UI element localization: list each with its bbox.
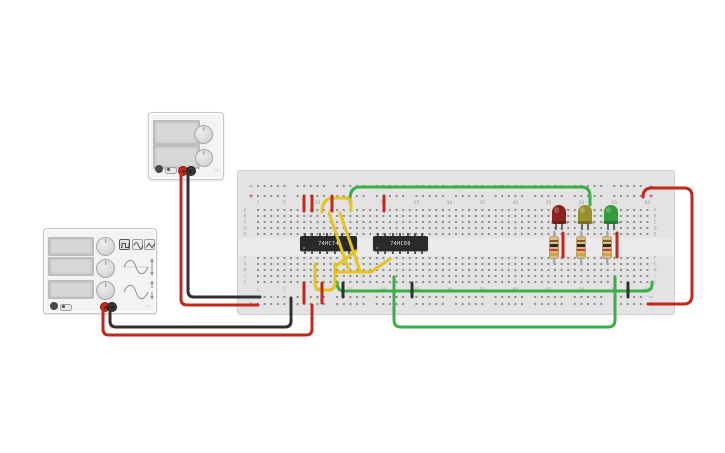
offset-diagram-icon — [123, 279, 155, 301]
ic-pin — [392, 251, 394, 254]
current-knob[interactable] — [195, 149, 213, 167]
function-generator-brand-mark: ~ — [146, 304, 151, 310]
ic-pin — [414, 251, 416, 254]
ic-pin — [319, 251, 321, 254]
ic-pin — [384, 233, 386, 236]
resistor-band — [550, 249, 558, 252]
ic-pin — [392, 233, 394, 236]
function-generator[interactable]: ~ — [43, 228, 157, 314]
offset-diagram — [123, 279, 155, 305]
ic-pin — [399, 233, 401, 236]
triangle-wave-icon — [145, 240, 156, 251]
ic-pin — [304, 251, 306, 254]
resistor-band — [577, 253, 585, 256]
led-yellow[interactable] — [578, 205, 592, 224]
sine-wave-button[interactable] — [132, 239, 143, 250]
ic-pin — [377, 251, 379, 254]
resistor-2[interactable] — [576, 236, 586, 259]
ic-pin — [421, 251, 423, 254]
ic-74hc74-label: 74HC74 — [318, 241, 338, 247]
ic-pin — [421, 233, 423, 236]
power-toggle-knob-icon — [50, 302, 58, 310]
resistor-band — [550, 244, 558, 247]
ic-74hc08[interactable]: 74HC08 — [373, 236, 428, 251]
function-generator-power-toggle[interactable] — [50, 302, 70, 310]
led-red-anode — [555, 224, 557, 230]
square-wave-button[interactable] — [119, 239, 130, 250]
ic-pin — [348, 233, 350, 236]
ic-pin — [414, 233, 416, 236]
frequency-knob[interactable] — [96, 237, 115, 256]
offset-knob[interactable] — [96, 281, 115, 300]
led-green[interactable] — [604, 205, 618, 224]
resistor-band — [577, 244, 585, 247]
led-red-cathode — [561, 224, 563, 230]
square-wave-icon — [120, 240, 131, 251]
power-supply-power-toggle[interactable] — [155, 165, 175, 173]
resistor-band — [550, 253, 558, 256]
power-supply-brand-mark: ~ — [214, 168, 219, 174]
led-green-anode — [607, 224, 609, 230]
ic-pin — [377, 233, 379, 236]
ic-74hc08-label: 74HC08 — [390, 241, 410, 247]
resistor-band — [550, 240, 558, 243]
function-generator-negative-terminal[interactable] — [107, 302, 117, 312]
amplitude-knob[interactable] — [96, 259, 115, 278]
ic-pin — [399, 251, 401, 254]
resistor-band — [577, 240, 585, 243]
ic-74hc74[interactable]: 74HC74 — [300, 236, 357, 251]
resistor-band — [603, 244, 611, 247]
triangle-wave-button[interactable] — [144, 239, 155, 250]
ic-pin — [334, 251, 336, 254]
power-toggle-knob-icon — [155, 165, 163, 173]
led-green-cathode — [613, 224, 615, 230]
sine-wave-icon — [133, 240, 144, 251]
frequency-display — [48, 237, 94, 256]
ic-pin — [304, 233, 306, 236]
power-supply-voltage-display — [153, 120, 200, 145]
ic-pin — [341, 251, 343, 254]
resistor-3[interactable] — [602, 236, 612, 259]
led-yellow-anode — [581, 224, 583, 230]
power-toggle-switch-icon — [165, 167, 177, 174]
led-yellow-cathode — [587, 224, 589, 230]
ic-pin — [341, 233, 343, 236]
ic-pin — [384, 251, 386, 254]
ic-pin — [407, 251, 409, 254]
power-supply-negative-terminal[interactable] — [186, 166, 196, 176]
resistor-1[interactable] — [549, 236, 559, 259]
ic-pin — [311, 233, 313, 236]
offset-display — [48, 280, 94, 299]
led-red[interactable] — [552, 205, 566, 224]
resistor-band — [603, 240, 611, 243]
voltage-knob[interactable] — [194, 125, 213, 144]
resistor-band — [603, 253, 611, 256]
amplitude-diagram-icon — [123, 256, 155, 278]
ic-pin — [326, 251, 328, 254]
power-toggle-switch-icon — [60, 304, 72, 311]
circuit-canvas[interactable]: 1155101015152020252530303535404045455050… — [0, 0, 725, 453]
resistor-band — [577, 249, 585, 252]
ic-pin — [311, 251, 313, 254]
resistor-band — [603, 249, 611, 252]
power-supply[interactable]: ~ — [148, 112, 224, 180]
ic-pin — [407, 233, 409, 236]
ic-pin — [348, 251, 350, 254]
ic-pin — [326, 233, 328, 236]
ic-pin — [334, 233, 336, 236]
amplitude-display — [48, 257, 94, 276]
ic-pin — [319, 233, 321, 236]
